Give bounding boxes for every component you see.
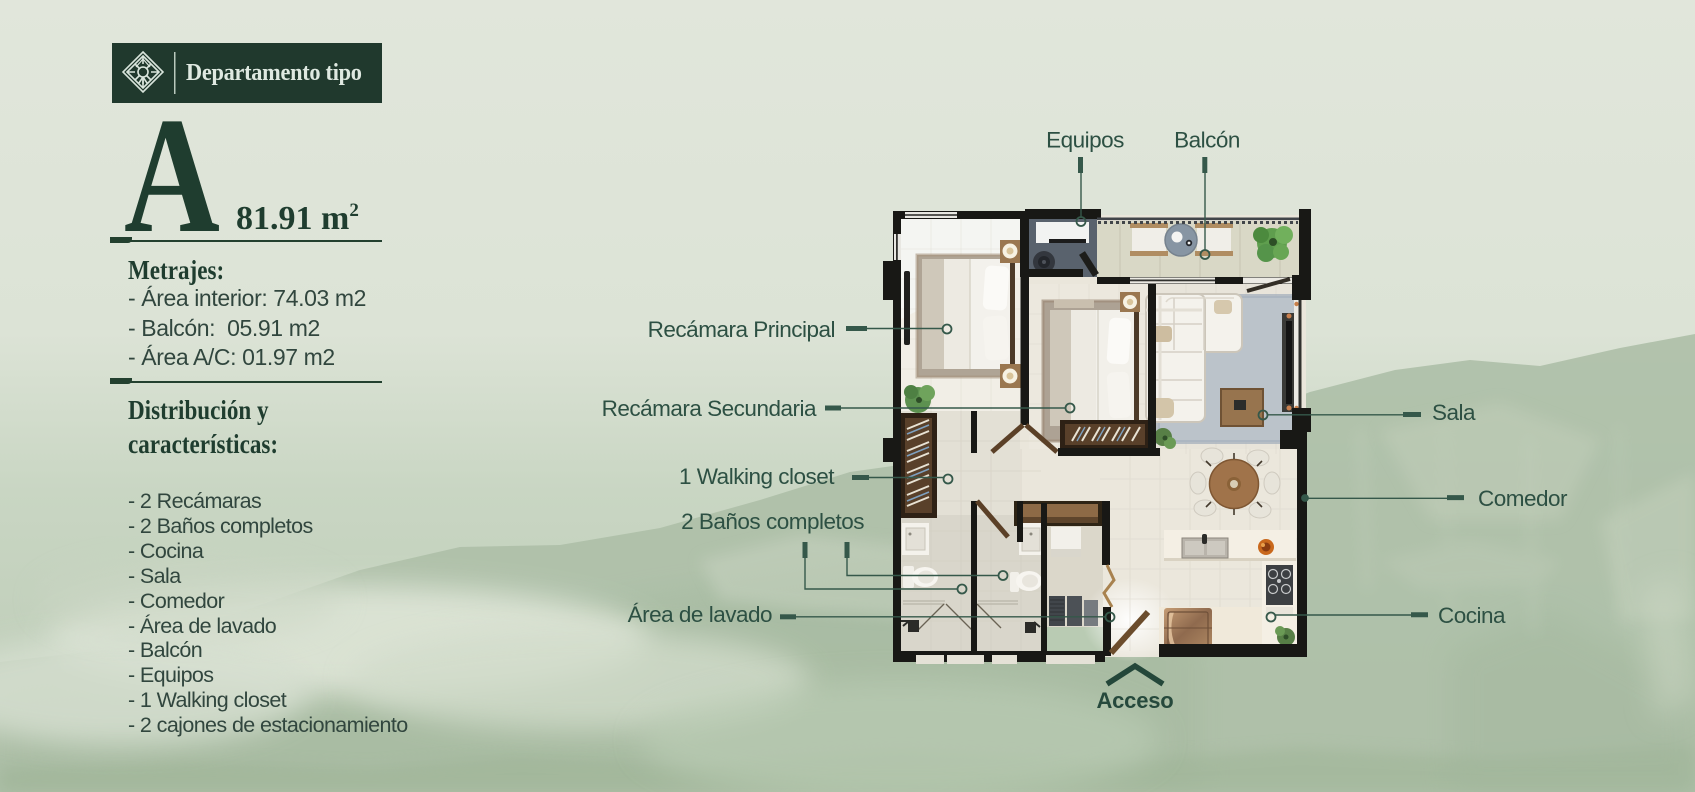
svg-text:Cocina: Cocina	[1438, 603, 1506, 628]
svg-text:Balcón: Balcón	[1174, 128, 1240, 153]
svg-text:Recámara Secundaria: Recámara Secundaria	[602, 396, 817, 421]
svg-text:Acceso: Acceso	[1096, 688, 1173, 713]
svg-text:2 Baños completos: 2 Baños completos	[681, 509, 864, 534]
svg-text:1 Walking closet: 1 Walking closet	[679, 464, 835, 489]
svg-text:Área de lavado: Área de lavado	[628, 602, 772, 627]
svg-text:Equipos: Equipos	[1046, 128, 1124, 153]
svg-text:Recámara Principal: Recámara Principal	[648, 317, 835, 342]
svg-text:Sala: Sala	[1432, 400, 1476, 425]
svg-text:Comedor: Comedor	[1478, 486, 1568, 511]
